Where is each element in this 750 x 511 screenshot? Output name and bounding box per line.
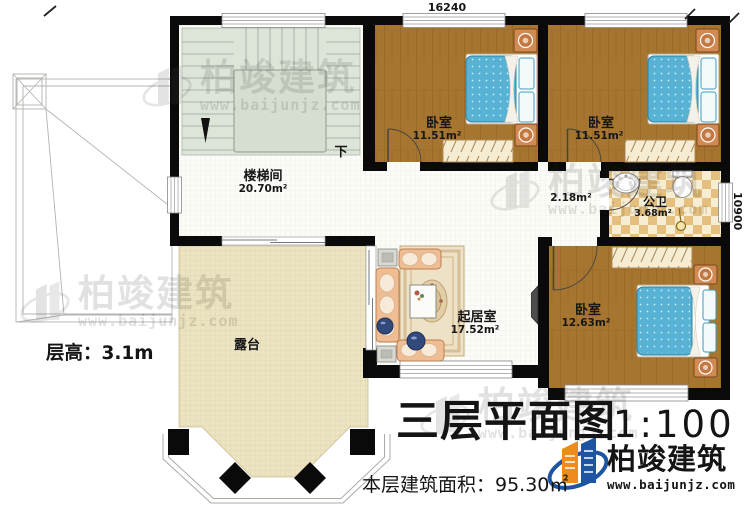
side-table-icon [377, 346, 396, 362]
pillow-icon [703, 290, 716, 320]
nightstand-icon [696, 29, 719, 52]
bathroom-area: 3.68m² [634, 209, 672, 219]
nightstand-icon [514, 29, 537, 52]
bedroom-c-area: 12.63m² [562, 318, 611, 329]
pillow-icon [703, 323, 716, 352]
toilet-icon [673, 171, 692, 198]
stairwell-area: 20.70m² [239, 184, 288, 195]
coffee-table-icon [410, 285, 436, 318]
bedroom-b-area: 11.51m² [575, 131, 624, 142]
stair-down-label: 下 [334, 146, 347, 159]
bedroom-b-label: 卧室 [588, 117, 614, 130]
pillow-icon [701, 92, 716, 122]
pillow-icon [519, 92, 534, 122]
hallway-area: 2.18m² [550, 193, 591, 204]
bathroom-label: 公卫 [643, 196, 667, 208]
nightstand-icon [697, 124, 719, 146]
wardrobe-icon [612, 247, 692, 268]
dimension-right: 10900 [731, 192, 744, 230]
nightstand-icon [515, 124, 537, 146]
bedroom-c-label: 卧室 [575, 304, 601, 317]
terrace-label: 露台 [234, 339, 260, 352]
bedroom-a-label: 卧室 [426, 117, 452, 130]
nightstand-icon [694, 265, 717, 284]
sink-icon [613, 173, 639, 193]
brand-website: www.baijunjz.com [607, 477, 735, 492]
living-room-area: 17.52m² [451, 325, 500, 336]
side-table-icon [378, 249, 397, 266]
brand-company-name: 柏竣建筑 [607, 436, 727, 478]
wardrobe-icon [443, 140, 513, 162]
stairwell-label: 楼梯间 [243, 170, 282, 183]
floor-area-note: 本层建筑面积：95.30㎡ [362, 470, 568, 497]
plan-title: 三层平面图 [396, 399, 616, 446]
pillow-icon [701, 58, 716, 89]
terrace-floor [179, 246, 368, 477]
pillow-icon [519, 58, 534, 89]
bedroom-a-area: 11.51m² [413, 131, 462, 142]
nightstand-icon [694, 358, 717, 377]
floor-plan-page: 柏竣建筑 www.baijunjz.com 柏竣建筑 www.baijunjz.… [0, 0, 750, 511]
wardrobe-icon [625, 140, 695, 162]
tv-icon [532, 286, 539, 324]
floor-height-note: 层高：3.1m [46, 339, 154, 365]
dimension-top: 16240 [428, 2, 466, 13]
living-room-label: 起居室 [457, 311, 496, 324]
hallway-floor [363, 162, 600, 246]
lower-roof-outline [13, 74, 172, 322]
